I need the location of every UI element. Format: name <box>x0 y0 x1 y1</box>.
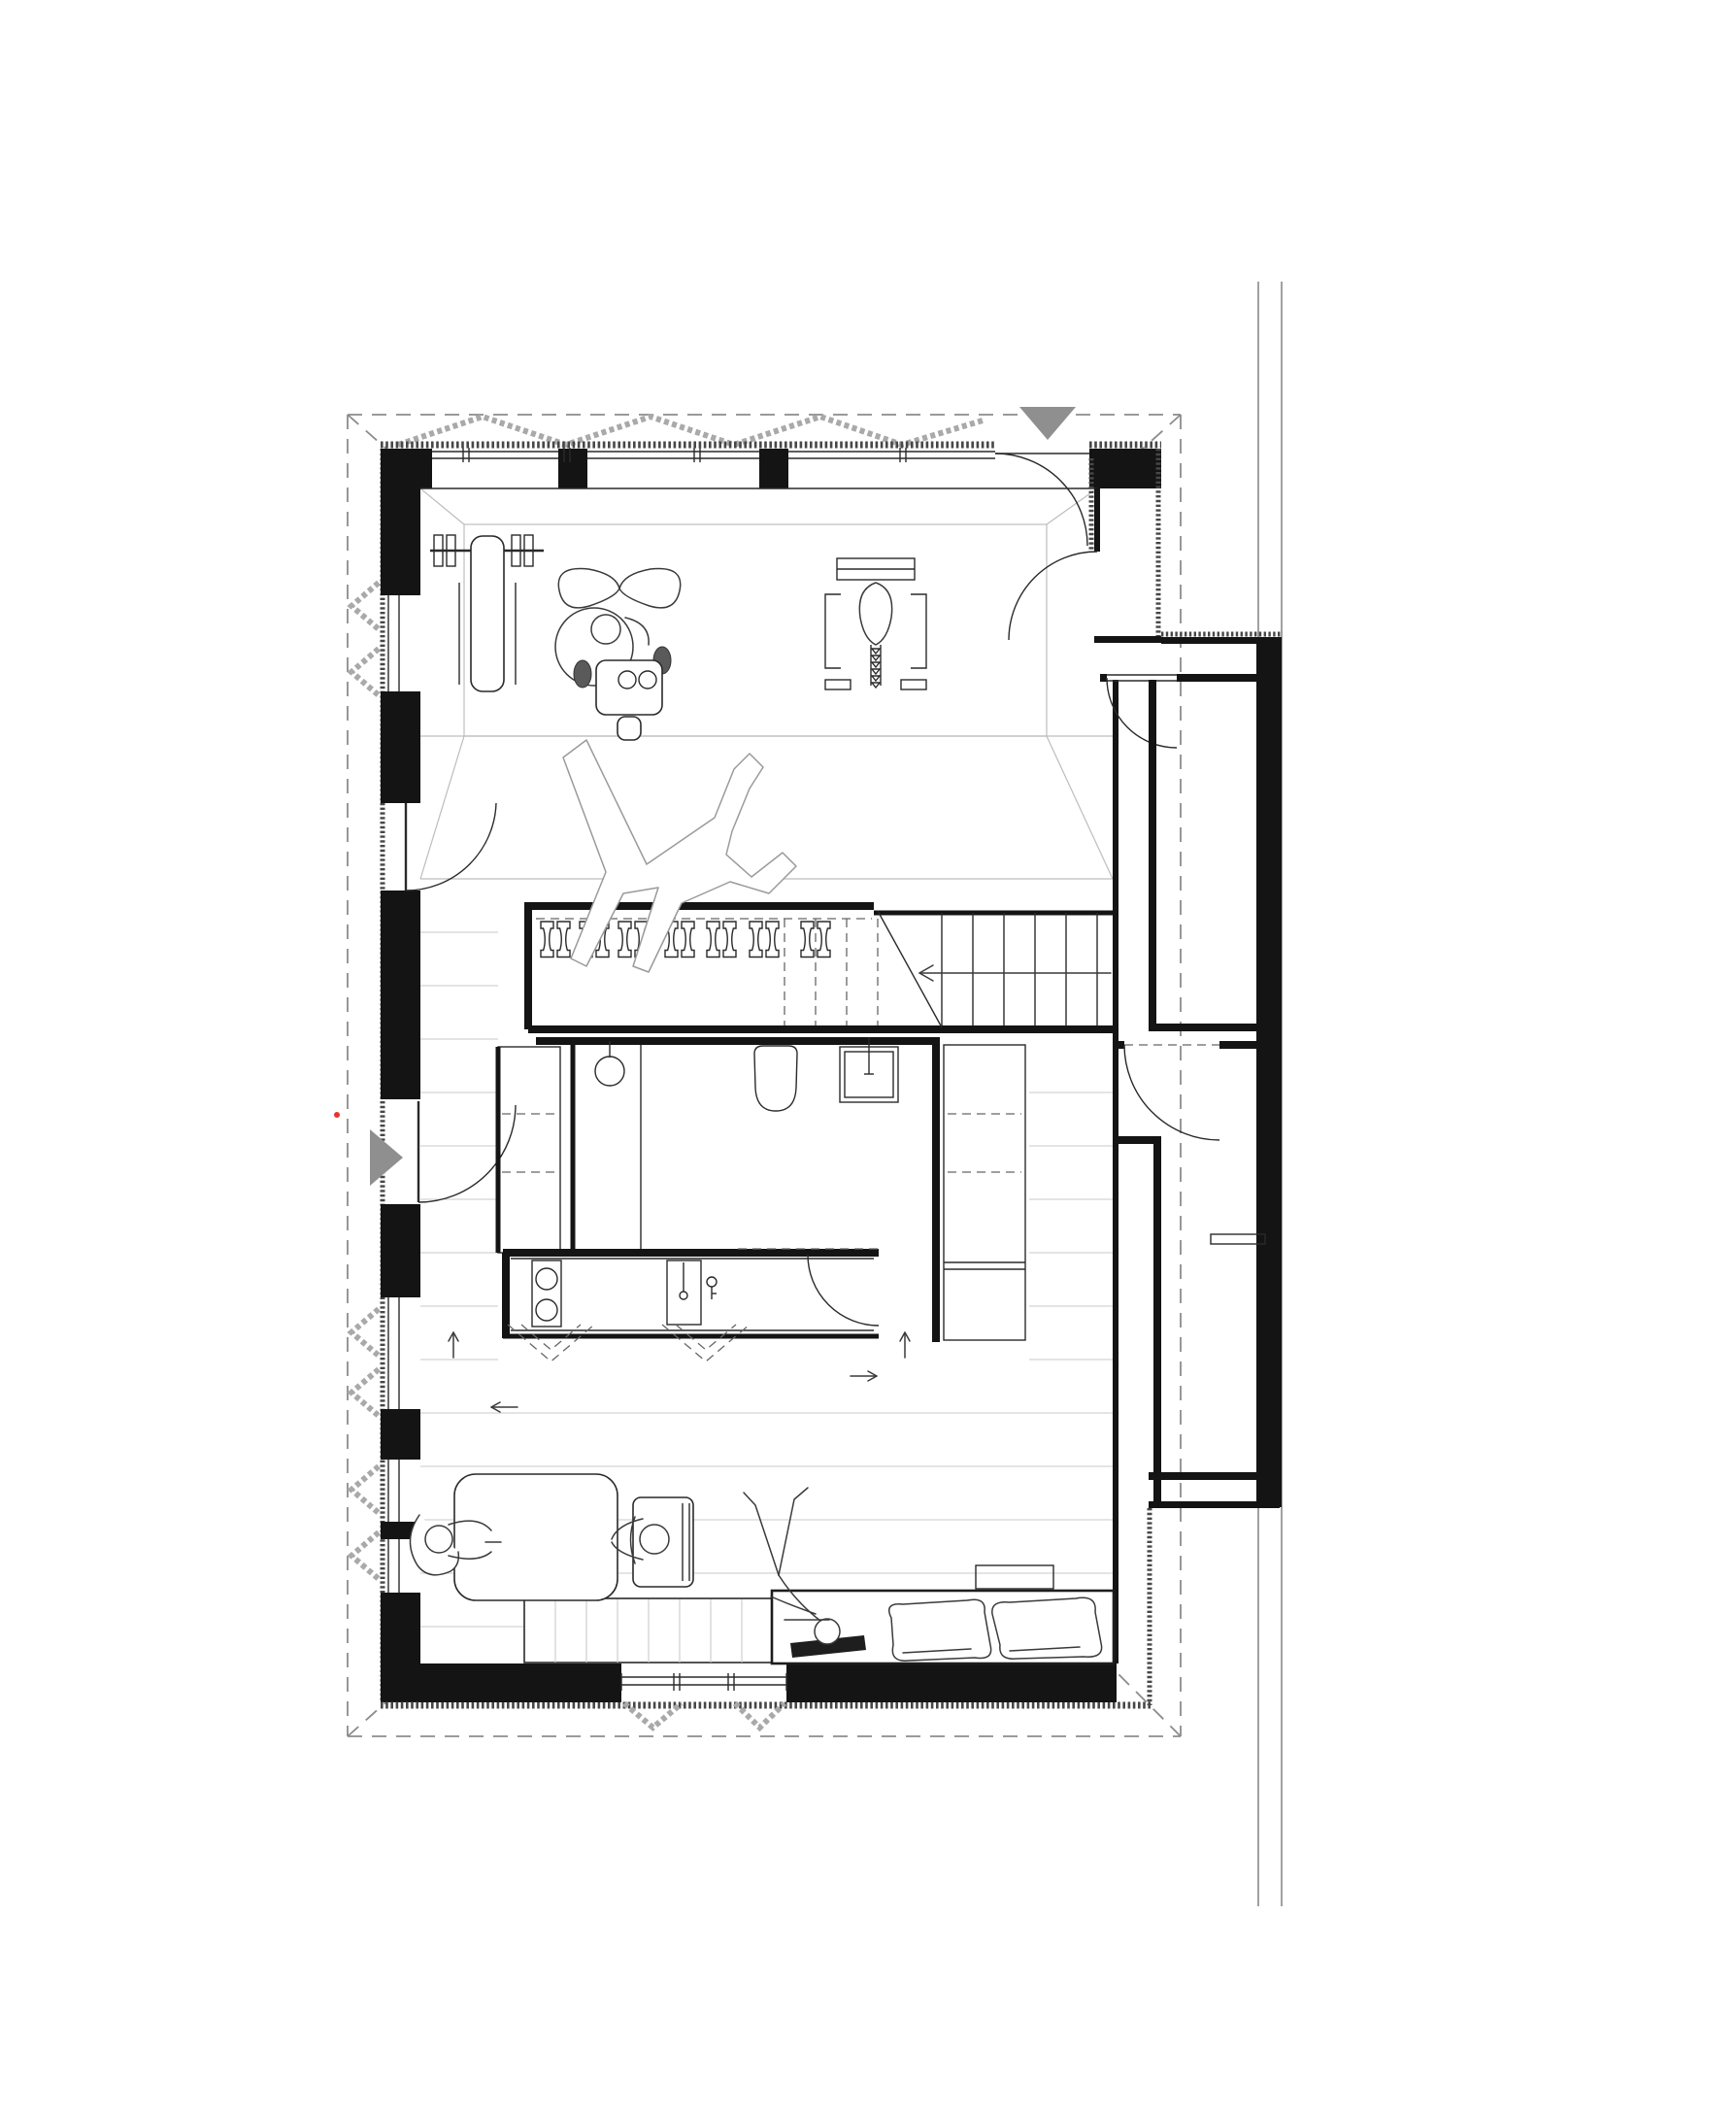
machine-seat <box>859 583 891 645</box>
wing-upper-room <box>1100 674 1280 1031</box>
lounger-leg-2 <box>779 1488 808 1575</box>
dining-table <box>454 1474 618 1600</box>
door-swing-west-hall <box>418 1105 516 1202</box>
facade-shade-chevrons-west <box>351 583 379 1579</box>
window-bench <box>524 1598 772 1663</box>
floor-plan-drawing: Architectural floor plan <box>0 0 1736 2117</box>
baluster <box>557 922 570 958</box>
north-wall <box>381 445 1161 546</box>
pier-north-2 <box>759 449 788 488</box>
weight-plate-marker <box>872 676 880 681</box>
south-window <box>621 1673 786 1691</box>
bike-pedal-left <box>574 660 591 688</box>
south-wall <box>381 1663 1152 1705</box>
shade-chevron <box>351 1369 379 1416</box>
shower <box>595 1041 624 1086</box>
pier-west-2 <box>381 691 420 803</box>
weight-stack <box>872 649 880 688</box>
pier-west-1 <box>381 449 420 595</box>
stretching-person <box>563 740 796 972</box>
baluster <box>541 922 553 958</box>
weight-plate-marker <box>872 662 880 667</box>
stair-hall <box>524 902 1113 1029</box>
north-glazing <box>432 452 995 458</box>
sitter-bench-head <box>425 1526 452 1553</box>
shade-chevron <box>351 1466 379 1513</box>
machine-frame-right <box>911 594 926 668</box>
pier-sw-corner <box>381 1593 420 1702</box>
section-marker-left <box>370 1129 403 1186</box>
stair-break-line <box>878 911 942 1027</box>
floor-plan-canvas: Architectural floor plan <box>0 0 1736 2117</box>
weight-plate-marker <box>872 683 880 688</box>
staircase <box>785 913 1097 1025</box>
roof-trusses <box>398 417 983 445</box>
baluster <box>723 922 736 958</box>
gym-east-wall-upper <box>1094 488 1100 552</box>
exercise-bike-with-rider <box>555 569 681 740</box>
west-door-hall <box>418 1101 516 1202</box>
pillow-fold <box>992 1597 1102 1659</box>
hall-bench <box>976 1565 1053 1589</box>
bike-front-wheel <box>618 717 641 740</box>
pier-north-1 <box>558 449 587 488</box>
lounger-leg-1 <box>744 1493 779 1575</box>
washbasin <box>840 1037 898 1102</box>
stair-direction-arrow <box>919 965 1111 981</box>
red-dot <box>334 1112 340 1118</box>
door-swing-north <box>995 454 1087 546</box>
door-swing-wing-lower <box>1124 1045 1219 1140</box>
pier-west-3 <box>381 890 420 1099</box>
shade-chevron <box>351 1532 379 1579</box>
baluster <box>818 922 830 958</box>
south-wall-east-block <box>786 1663 1117 1702</box>
weight-plate-marker <box>872 649 880 654</box>
wardrobe-left <box>498 1047 560 1253</box>
pier-west-5 <box>381 1409 420 1460</box>
baluster <box>750 922 762 958</box>
wing-lower-room-west-wall <box>1153 1144 1161 1507</box>
cooktop <box>532 1260 561 1327</box>
north-entrance-door <box>995 454 1089 546</box>
bench-press <box>430 535 544 691</box>
section-marker-top <box>1019 407 1076 440</box>
kitchen <box>503 1249 879 1338</box>
weight-plate-marker <box>872 669 880 674</box>
baluster <box>766 922 779 958</box>
east-step-wall <box>1094 636 1161 643</box>
shade-chevron <box>351 583 379 629</box>
door-swing-kitchen <box>808 1255 879 1326</box>
door-swing-west-gym <box>406 803 496 890</box>
ceiling-flat-zone <box>464 524 1047 736</box>
shade-chevron <box>624 1703 682 1728</box>
wing-stub-wall <box>1118 1136 1161 1144</box>
ceiling-hip-sw <box>420 736 464 879</box>
wing-upper-room-south-wall <box>1149 1024 1280 1031</box>
baluster <box>618 922 631 958</box>
pier-west-4 <box>381 1204 420 1297</box>
east-walls <box>1009 449 1282 1705</box>
kitchen-door <box>738 1249 879 1326</box>
weight-machine <box>825 558 926 689</box>
machine-frame-left <box>825 594 841 668</box>
shade-chevron <box>351 1309 379 1356</box>
bathroom <box>536 1037 940 1342</box>
weight-plate-marker <box>872 655 880 660</box>
door-swing-gym-east <box>1009 552 1097 640</box>
wing-east-wall <box>1256 641 1282 1507</box>
pier-ne-corner <box>1089 449 1161 488</box>
ceiling-hip-nw <box>420 488 464 524</box>
wing-south-edge <box>1149 1501 1280 1508</box>
kitchen-sink <box>667 1260 701 1325</box>
west-door-gym <box>406 803 496 890</box>
baluster <box>682 922 694 958</box>
corridor-east-wall <box>1113 680 1118 1663</box>
shade-chevron <box>351 649 379 695</box>
bench-pad <box>471 536 504 691</box>
lounger-head <box>815 1619 840 1644</box>
pillow <box>889 1599 991 1661</box>
wing-lower-room-south-wall <box>1149 1472 1280 1480</box>
wing-upper-room-west-wall <box>1149 680 1156 1024</box>
wardrobe-right <box>944 1045 1025 1340</box>
rider-head <box>591 615 620 644</box>
toilet <box>754 1046 797 1111</box>
baluster <box>707 922 719 958</box>
floor-direction-arrows <box>449 1332 910 1412</box>
truss-zigzag <box>398 417 983 445</box>
wing-lower-room-north-wall <box>1219 1041 1282 1049</box>
key-symbol <box>707 1277 717 1299</box>
baluster <box>801 922 814 958</box>
bike-handlebar <box>558 569 680 608</box>
south-wall-west-block <box>420 1663 621 1702</box>
ceiling-hip-se <box>1047 736 1113 879</box>
sitter-chair-head <box>640 1525 669 1554</box>
